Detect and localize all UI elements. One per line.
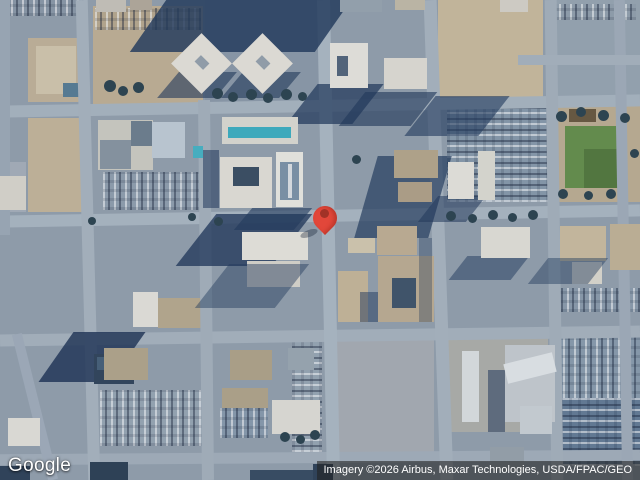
tree bbox=[133, 82, 144, 93]
tree bbox=[584, 191, 593, 200]
parking-lot bbox=[103, 172, 205, 210]
building bbox=[330, 43, 368, 88]
shadow bbox=[449, 256, 530, 280]
shadow bbox=[203, 150, 219, 208]
parking-lot bbox=[220, 408, 268, 438]
building bbox=[8, 418, 40, 446]
concrete-lot bbox=[330, 336, 434, 456]
location-pin[interactable] bbox=[313, 206, 337, 236]
building bbox=[478, 151, 495, 200]
imagery-attribution: Imagery ©2026 Airbus, Maxar Technologies… bbox=[317, 461, 640, 480]
building bbox=[104, 348, 148, 380]
tree bbox=[228, 92, 238, 102]
tree bbox=[118, 86, 128, 96]
building bbox=[152, 122, 185, 158]
building bbox=[133, 292, 158, 327]
building bbox=[340, 0, 382, 12]
tree bbox=[558, 189, 568, 199]
tree bbox=[488, 210, 498, 220]
building bbox=[230, 350, 272, 380]
tree bbox=[214, 217, 223, 226]
roof-detail bbox=[233, 167, 259, 186]
building bbox=[398, 182, 432, 202]
tree bbox=[468, 214, 477, 223]
pool bbox=[193, 146, 203, 158]
building bbox=[520, 406, 552, 434]
tree bbox=[310, 430, 320, 440]
tree bbox=[296, 435, 305, 444]
google-logo[interactable]: Google bbox=[8, 455, 71, 477]
tree bbox=[246, 89, 257, 100]
tree bbox=[104, 80, 116, 92]
building bbox=[130, 0, 152, 10]
tree bbox=[528, 210, 538, 220]
shadow bbox=[360, 292, 378, 322]
tree bbox=[280, 432, 290, 442]
roof-detail bbox=[337, 56, 348, 76]
building bbox=[0, 176, 26, 210]
tree bbox=[576, 107, 586, 117]
shadow bbox=[130, 0, 351, 52]
building bbox=[500, 0, 528, 12]
building bbox=[395, 0, 425, 10]
roof-detail bbox=[100, 140, 131, 169]
tree bbox=[606, 189, 616, 199]
tree bbox=[598, 110, 609, 121]
tree bbox=[556, 111, 567, 122]
building bbox=[377, 226, 417, 255]
map-viewport[interactable]: Google Imagery ©2026 Airbus, Maxar Techn… bbox=[0, 0, 640, 480]
tree bbox=[620, 113, 630, 123]
shadow bbox=[488, 370, 505, 432]
tree bbox=[508, 213, 517, 222]
building bbox=[348, 238, 375, 253]
building bbox=[481, 227, 530, 258]
tree bbox=[281, 89, 292, 100]
building bbox=[250, 470, 314, 480]
building bbox=[462, 351, 479, 422]
dirt-lot bbox=[438, 0, 543, 97]
street bbox=[518, 55, 640, 65]
roof-detail bbox=[131, 121, 152, 146]
building bbox=[96, 0, 126, 12]
building bbox=[560, 226, 606, 261]
building bbox=[288, 348, 314, 370]
parking-lot bbox=[100, 390, 212, 446]
building bbox=[272, 400, 320, 434]
building bbox=[394, 150, 438, 178]
tree bbox=[298, 92, 307, 101]
parking-row bbox=[0, 0, 86, 16]
tree bbox=[352, 155, 361, 164]
shadow bbox=[419, 238, 432, 322]
roof-detail bbox=[288, 164, 292, 198]
building bbox=[610, 224, 640, 270]
pin-drop-shadow bbox=[299, 227, 318, 240]
dirt-lot bbox=[28, 118, 84, 212]
tree bbox=[88, 217, 96, 225]
building bbox=[222, 388, 268, 408]
tree bbox=[212, 88, 223, 99]
building bbox=[384, 58, 427, 89]
roof-detail bbox=[392, 278, 416, 308]
building bbox=[448, 162, 474, 199]
building bbox=[242, 232, 308, 260]
tree bbox=[263, 93, 273, 103]
pool bbox=[228, 127, 291, 138]
building bbox=[90, 462, 128, 480]
pin-inner-dot bbox=[320, 209, 329, 218]
tree bbox=[446, 211, 456, 221]
building bbox=[63, 83, 79, 97]
tree bbox=[188, 213, 196, 221]
tree bbox=[630, 149, 639, 158]
